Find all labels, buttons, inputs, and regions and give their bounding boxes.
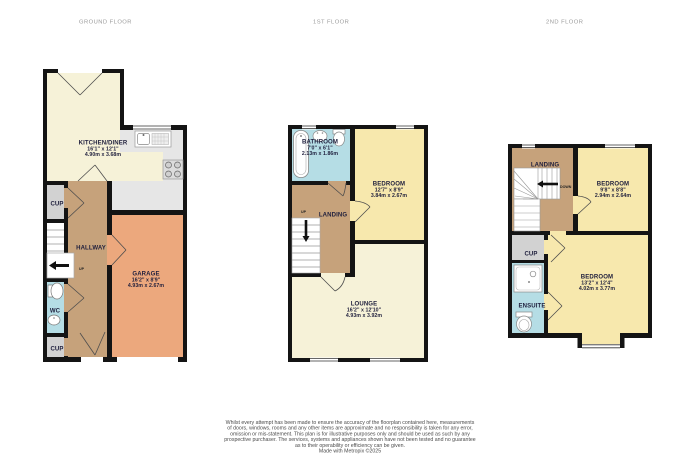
garage-label: GARAGE 16'2" x 8'9" 4.93m x 2.67m <box>146 271 212 305</box>
floorplan-page: GROUND FLOOR 1ST FLOOR 2ND FLOOR <box>0 0 700 458</box>
bathroom-label: BATHROOM 7'0" x 6'1" 2.13m x 1.86m <box>320 139 386 173</box>
bedroom-back-label: BEDROOM 13'2" x 12'4" 4.02m x 3.77m <box>597 274 663 308</box>
landing-label: LANDING <box>333 207 385 225</box>
toilet-icon <box>48 283 63 299</box>
landing-label: LANDING <box>545 157 597 175</box>
down-label: DOWN <box>560 180 592 198</box>
shower-icon <box>514 265 542 292</box>
disclaimer-credit: Made with Metropix ©2025 <box>224 449 475 455</box>
bedroom-front-label: BEDROOM 9'8" x 8'8" 2.94m x 2.64m <box>613 181 679 215</box>
bedroom-label: BEDROOM 12'7" x 8'9" 3.84m x 2.67m <box>389 181 455 215</box>
bay-window <box>578 333 625 349</box>
ensuite-label: ENSUITE <box>532 298 581 316</box>
kitchen-window <box>133 125 171 130</box>
lounge-label: LOUNGE 16'2" x 12'10" 4.93m x 3.92m <box>364 301 430 335</box>
hallway-label: HALLWAY <box>91 240 145 258</box>
disclaimer: Whilst every attempt has been made to en… <box>350 420 700 458</box>
first-floor-plan: BATHROOM 7'0" x 6'1" 2.13m x 1.86m BEDRO… <box>288 125 428 362</box>
second-floor-drawing <box>508 144 652 354</box>
ground-floor-plan: KITCHEN/DINER 16'1" x 12'1" 4.90m x 3.68… <box>43 69 187 363</box>
up-label: UP <box>301 205 315 223</box>
second-floor-plan: LANDING DOWN BEDROOM 9'8" x 8'8" 2.94m x… <box>508 144 652 354</box>
kitchen-diner-label: KITCHEN/DINER 16'1" x 12'1" 4.90m x 3.68… <box>103 140 192 174</box>
toilet-icon <box>516 312 532 332</box>
cup-top-label: CUP <box>57 196 81 214</box>
second-floor-title: 2ND FLOOR <box>546 14 610 32</box>
wc-label: WC <box>55 303 74 321</box>
first-floor-title: 1ST FLOOR <box>313 14 376 32</box>
up-label: UP <box>79 262 93 280</box>
cup-label: CUP <box>531 246 555 264</box>
ground-floor-title: GROUND FLOOR <box>79 14 170 32</box>
cup-bottom-label: CUP <box>57 341 81 359</box>
